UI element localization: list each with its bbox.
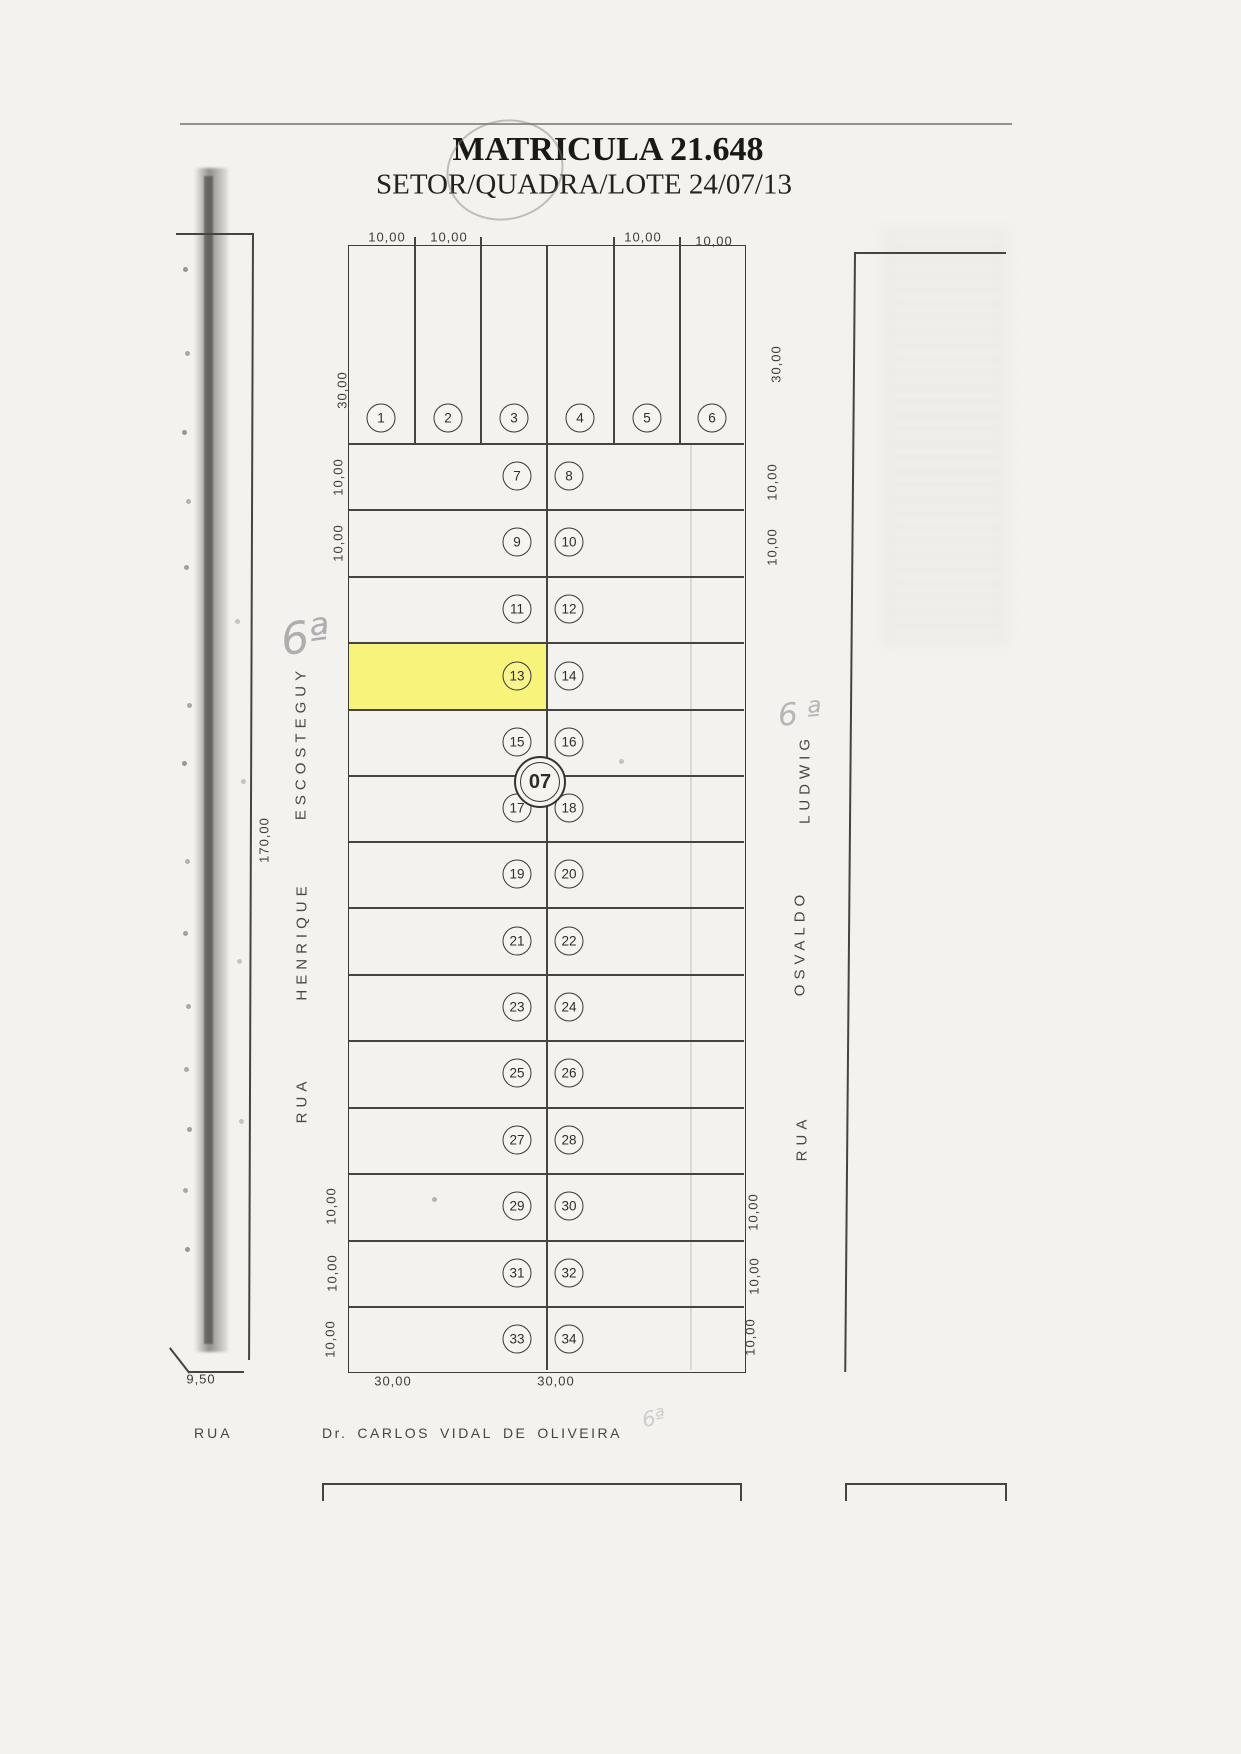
dim-top-1: 10,00 (368, 230, 406, 245)
dim-right-row: 10,00 (765, 528, 780, 566)
lot-number: 11 (510, 602, 524, 617)
lot-circle-31: 31 (503, 1259, 532, 1288)
bottom-street-word: DE (503, 1425, 527, 1441)
left-street-curb-line (248, 233, 253, 1360)
lot-number: 9 (513, 535, 521, 550)
street-corner-chamfer (169, 1347, 190, 1373)
dimension-tick (613, 237, 615, 245)
lot-number: 18 (561, 801, 576, 816)
dim-top-2: 10,00 (430, 230, 468, 245)
dim-bottom-1: 30,00 (374, 1374, 412, 1389)
lot-circle-2: 2 (434, 404, 463, 433)
block-center-divider (546, 246, 548, 1370)
lower-left-block-tick (322, 1483, 324, 1501)
lot-number: 21 (509, 934, 524, 949)
lot-circle-14: 14 (555, 662, 584, 691)
lot-number: 32 (561, 1266, 576, 1281)
left-street-top-tick (176, 233, 253, 235)
pencil-scribble-oval (436, 107, 575, 233)
right-street-word-osvaldo: OSVALDO (792, 890, 809, 996)
lot-circle-10: 10 (555, 528, 584, 557)
lot-divider (613, 246, 615, 443)
lot-number: 8 (565, 469, 573, 484)
row-line (349, 1040, 744, 1042)
lot-circle-24: 24 (555, 993, 584, 1022)
quadra-number-circle: 07 (514, 756, 566, 808)
dim-left-total: 170,00 (257, 817, 272, 863)
lot-circle-15: 15 (503, 728, 532, 757)
dimension-tick (480, 237, 482, 245)
dim-right-depth: 30,00 (769, 345, 784, 383)
lot-circle-6: 6 (698, 404, 727, 433)
lot-circle-12: 12 (555, 595, 584, 624)
dim-corner: 9,50 (186, 1372, 215, 1387)
scan-speckles (0, 0, 3, 3)
lot-circle-11: 11 (503, 595, 532, 624)
lot-circle-7: 7 (503, 462, 532, 491)
lot-number: 16 (561, 735, 576, 750)
scan-top-line (180, 123, 1012, 125)
lot-circle-16: 16 (555, 728, 584, 757)
row-line (349, 509, 744, 511)
lot-number: 24 (561, 1000, 576, 1015)
lot-number: 19 (509, 867, 524, 882)
lower-right-block-edge (845, 1483, 1006, 1485)
lot-number: 1 (377, 411, 385, 426)
dim-right-row: 10,00 (747, 1257, 762, 1295)
row-line (349, 1107, 744, 1109)
scan-bleed-line (690, 445, 692, 1370)
dim-top-4: 10,00 (695, 234, 733, 249)
lot-number: 10 (561, 535, 576, 550)
lot-number: 29 (509, 1199, 524, 1214)
dim-left-row: 10,00 (325, 1254, 340, 1292)
lot-circle-20: 20 (555, 860, 584, 889)
lot-number: 33 (509, 1332, 524, 1347)
lot-circle-22: 22 (555, 927, 584, 956)
lot-number: 22 (561, 934, 576, 949)
dim-left-row: 10,00 (331, 458, 346, 496)
bottom-street-word: Dr. (322, 1425, 347, 1441)
lower-left-block-tick (740, 1483, 742, 1501)
lot-divider (679, 246, 681, 443)
quadra-number: 07 (520, 762, 560, 802)
lot-circle-25: 25 (503, 1059, 532, 1088)
row-line (349, 1306, 744, 1308)
lot-circle-27: 27 (503, 1126, 532, 1155)
row-line (349, 642, 744, 644)
scanned-plat-page: MATRICULA 21.648 SETOR/QUADRA/LOTE 24/07… (0, 0, 1241, 1754)
right-street-top-line (855, 252, 1006, 254)
lot-number: 27 (509, 1133, 524, 1148)
dim-left-row: 10,00 (324, 1187, 339, 1225)
lot-number: 2 (444, 411, 452, 426)
row-line (349, 576, 744, 578)
dim-top-3: 10,00 (624, 230, 662, 245)
left-street-word-escosteguy: ESCOSTEGUY (293, 666, 310, 820)
row-line (349, 841, 744, 843)
lot-divider (414, 246, 416, 443)
handwritten-annotation-left: 6ª (278, 609, 333, 666)
row-line (349, 907, 744, 909)
lot-circle-9: 9 (503, 528, 532, 557)
lot-circle-8: 8 (555, 462, 584, 491)
lot-number: 15 (509, 735, 524, 750)
lot-number: 17 (509, 801, 524, 816)
scan-artifact-smudge (880, 230, 1010, 650)
dim-right-row: 10,00 (765, 463, 780, 501)
lot-number: 23 (509, 1000, 524, 1015)
lot-circle-13: 13 (503, 662, 532, 691)
row-line (349, 1173, 744, 1175)
dim-left-row: 10,00 (323, 1320, 338, 1358)
lot-number: 3 (510, 411, 518, 426)
lower-left-block-edge (322, 1483, 741, 1485)
dimension-tick (414, 237, 416, 245)
bottom-street-word: CARLOS (357, 1425, 430, 1441)
dim-left-depth: 30,00 (335, 371, 350, 409)
page-subtitle: SETOR/QUADRA/LOTE 24/07/13 (376, 169, 792, 202)
lot-circle-26: 26 (555, 1059, 584, 1088)
dimension-tick (679, 237, 681, 245)
lot-number: 28 (561, 1133, 576, 1148)
lot-number: 14 (561, 669, 576, 684)
lot-number: 13 (509, 669, 524, 684)
lot-circle-4: 4 (566, 404, 595, 433)
left-street-word-henrique: HENRIQUE (294, 881, 311, 1000)
lot-number: 12 (561, 602, 576, 617)
lot-circle-30: 30 (555, 1192, 584, 1221)
dim-right-row: 10,00 (746, 1193, 761, 1231)
lot-circle-19: 19 (503, 860, 532, 889)
lot-number: 25 (509, 1066, 524, 1081)
row-line (349, 974, 744, 976)
dim-right-row: 10,00 (743, 1318, 758, 1356)
lot-circle-5: 5 (633, 404, 662, 433)
scan-artifact-left-band-core (204, 176, 213, 1344)
right-street-word-ludwig: LUDWIG (797, 734, 814, 824)
right-street-curb-line (844, 252, 855, 1372)
lower-right-block-tick (845, 1483, 847, 1501)
handwritten-annotation-right: 6ª (777, 694, 832, 734)
lot-circle-1: 1 (367, 404, 396, 433)
bottom-street-word: OLIVEIRA (537, 1425, 622, 1441)
lot-number: 6 (708, 411, 716, 426)
lot-number: 34 (561, 1332, 576, 1347)
lot-circle-29: 29 (503, 1192, 532, 1221)
lot-circle-3: 3 (500, 404, 529, 433)
left-street-word-rua: RUA (294, 1077, 311, 1124)
row-line (349, 709, 744, 711)
bottom-street-rua: RUA (194, 1425, 233, 1441)
lot-circle-34: 34 (555, 1325, 584, 1354)
lot-number: 20 (561, 867, 576, 882)
street-corner-line (188, 1371, 244, 1373)
handwritten-annotation-bottom: 6ª (640, 1404, 668, 1432)
lot-number: 31 (509, 1266, 524, 1281)
lot-number: 5 (643, 411, 651, 426)
right-street-word-rua: RUA (794, 1115, 811, 1162)
lot-number: 7 (513, 469, 521, 484)
lot-number: 4 (576, 411, 584, 426)
lot-circle-32: 32 (555, 1259, 584, 1288)
dim-bottom-2: 30,00 (537, 1374, 575, 1389)
dim-left-row: 10,00 (331, 524, 346, 562)
lot-circle-33: 33 (503, 1325, 532, 1354)
lot-circle-28: 28 (555, 1126, 584, 1155)
row-line (349, 1240, 744, 1242)
row-line (349, 443, 744, 445)
bottom-street-word: VIDAL (440, 1425, 493, 1441)
lot-divider (480, 246, 482, 443)
lower-right-block-tick (1005, 1483, 1007, 1501)
lot-circle-21: 21 (503, 927, 532, 956)
lot-circle-23: 23 (503, 993, 532, 1022)
lot-number: 30 (561, 1199, 576, 1214)
lot-number: 26 (561, 1066, 576, 1081)
bottom-street-name: Dr. CARLOS VIDAL DE OLIVEIRA (322, 1425, 622, 1441)
